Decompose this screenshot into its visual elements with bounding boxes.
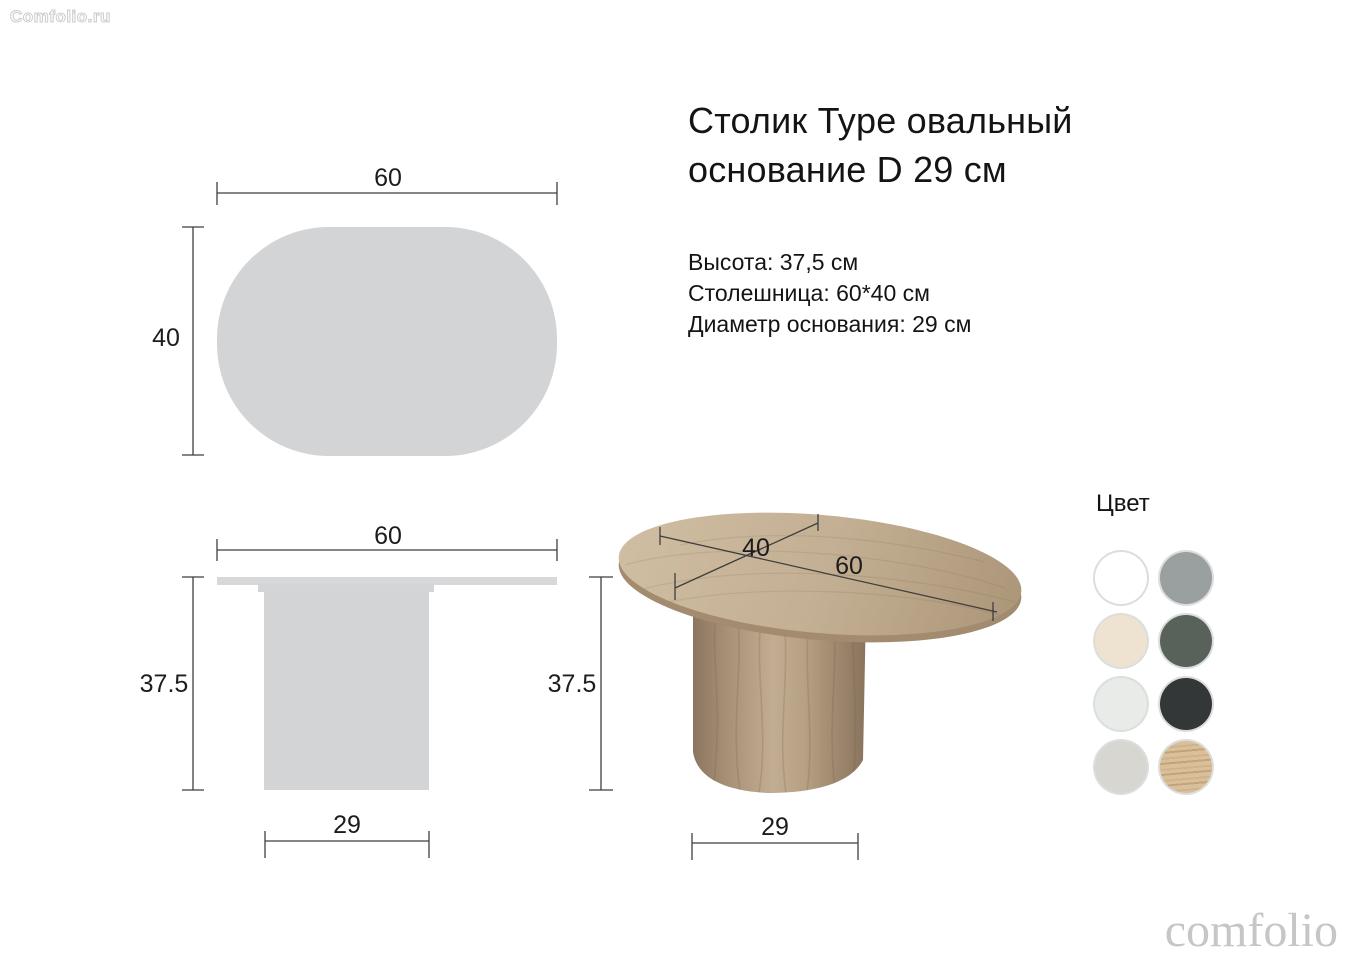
side-view-height-label: 37.5 [140,670,189,698]
side-view-schematic [217,577,557,790]
render-width-label: 60 [835,552,863,580]
product-spec-sheet: Comfolio.ru Столик Type овальныйосновани… [0,0,1350,960]
color-swatch-gray [1160,552,1212,604]
color-swatches [1095,552,1212,793]
top-view-tabletop-shape [217,227,557,456]
color-swatch-white [1095,552,1147,604]
render-base-label: 29 [761,813,789,841]
color-swatch-charcoal [1160,678,1212,730]
color-section-heading: Цвет [1096,490,1150,518]
top-view-depth-label: 40 [152,324,180,352]
render-height-label: 37.5 [548,670,597,698]
color-swatch-light-gray [1095,678,1147,730]
color-swatch-graphite-green [1160,615,1212,667]
color-swatch-cream [1095,615,1147,667]
side-view-pedestal [264,590,429,790]
color-swatch-light-oak [1160,741,1212,793]
color-swatch-stone-gray [1095,741,1147,793]
brand-logo: comfolio [1165,903,1338,958]
top-view-width-label: 60 [374,164,402,192]
side-view-tabletop [217,577,557,585]
side-view-base-label: 29 [333,811,361,839]
dimension-diagrams: 60 40 60 37.5 29 40 60 37.5 29 [0,0,1350,960]
table-3d-render [614,498,1027,793]
render-depth-label: 40 [742,534,770,562]
side-view-width-label: 60 [374,522,402,550]
